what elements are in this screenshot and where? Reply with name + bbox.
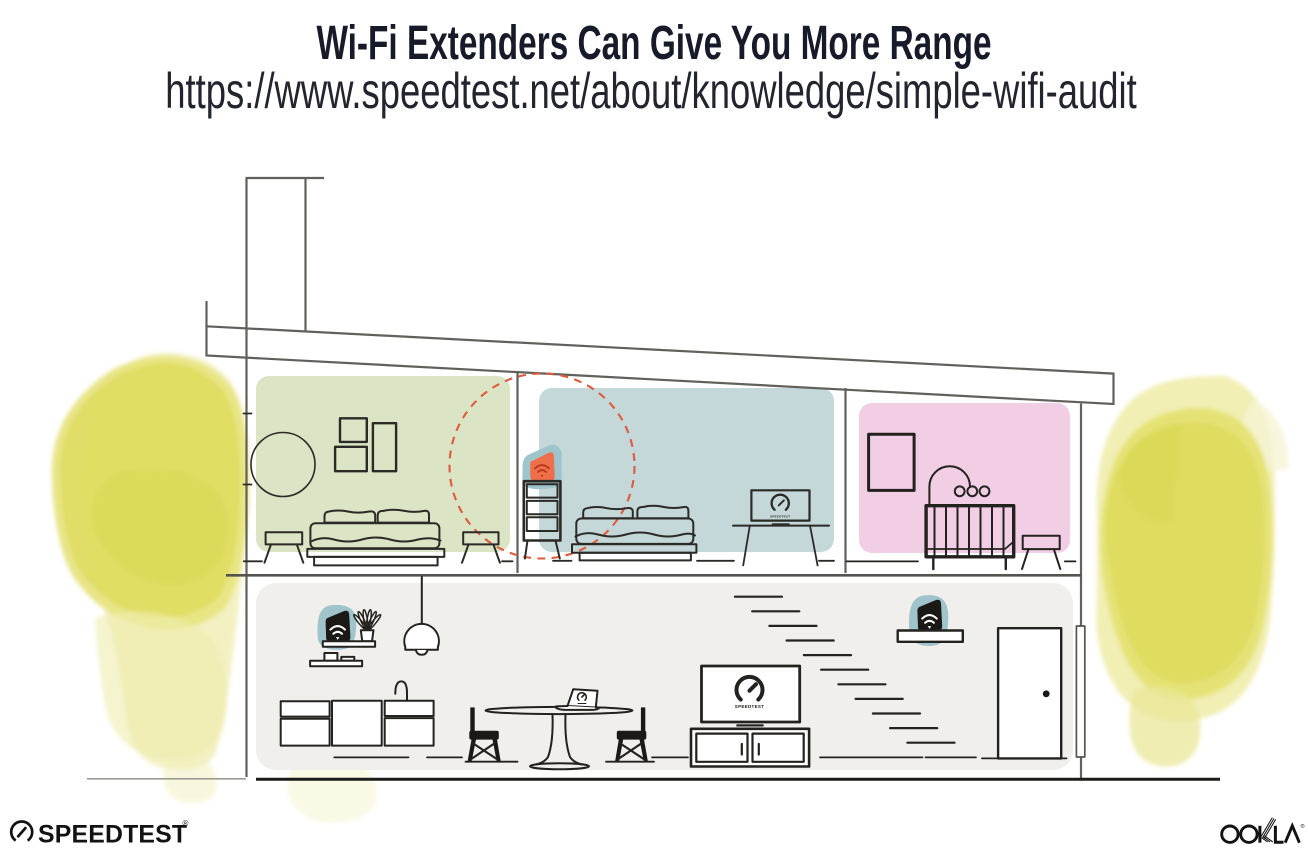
svg-text:SPEEDTEST: SPEEDTEST bbox=[735, 704, 764, 709]
svg-text:SPEEDTEST: SPEEDTEST bbox=[770, 514, 790, 518]
svg-text:®: ® bbox=[1301, 823, 1305, 830]
svg-text:SPEEDTEST: SPEEDTEST bbox=[38, 822, 187, 849]
svg-text:®: ® bbox=[183, 819, 189, 828]
